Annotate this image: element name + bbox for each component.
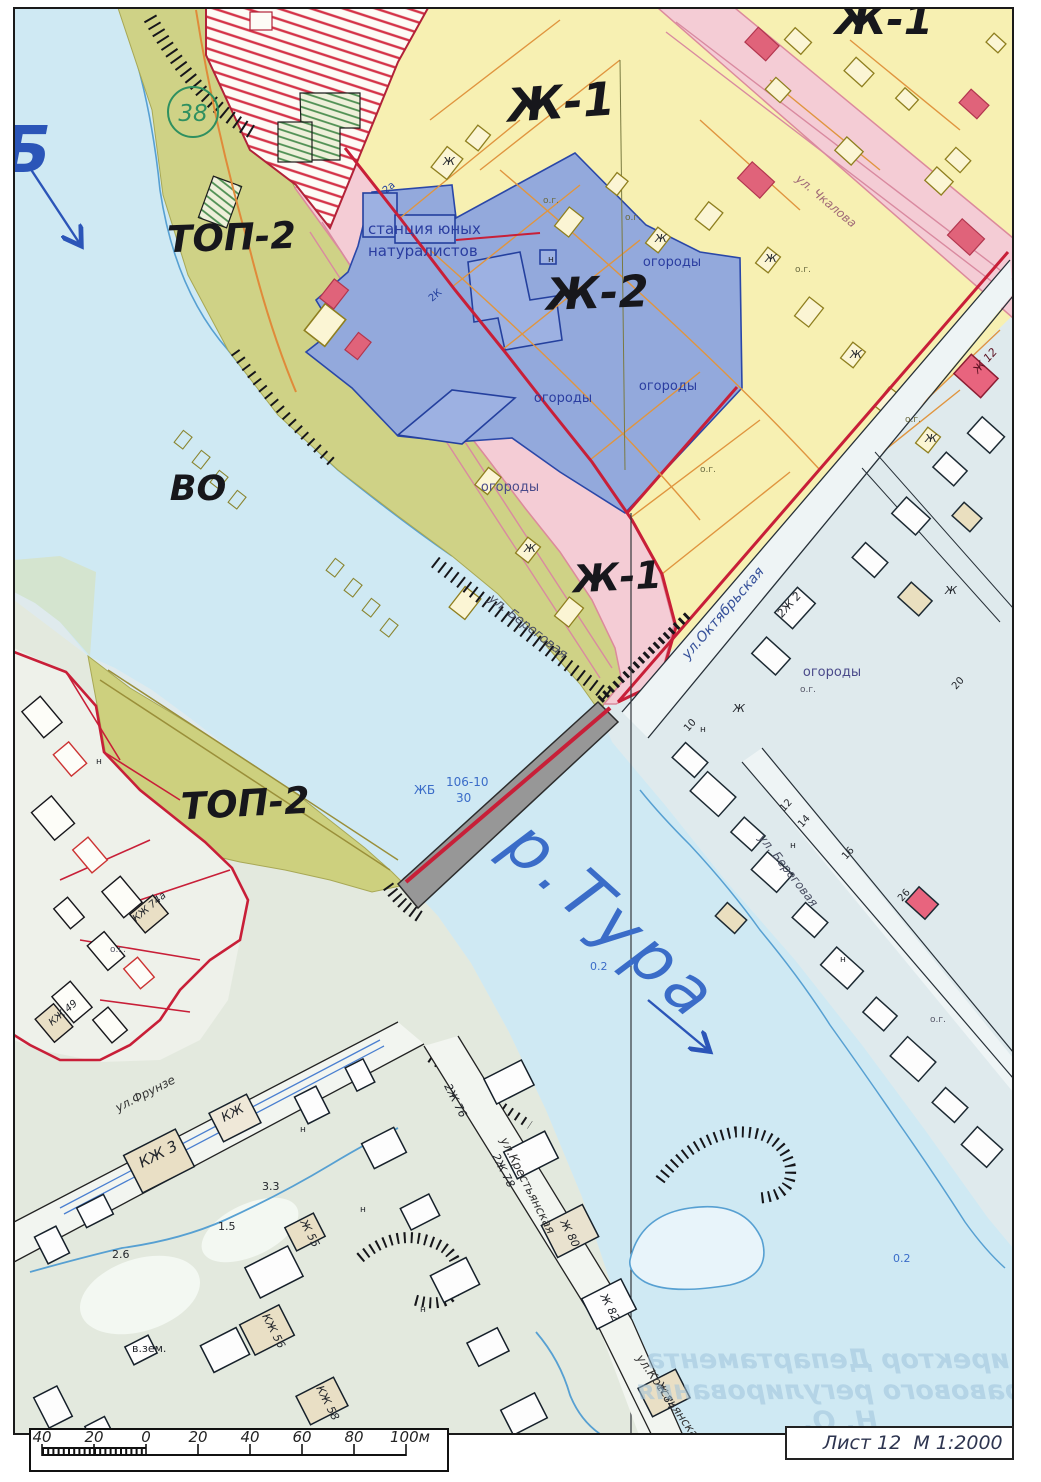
map-canvas: 38 Б Ж-1 Ж-1 Ж-1 Ж-2 ТОП-2 ТОП-2 ВО р.Ту… [0,0,1041,1482]
zh-mark: Ж [523,542,537,555]
garden-label: огороды [481,480,539,495]
depth-mark: 0.2 [893,1252,911,1265]
zone-label-zh1-top: Ж-1 [502,71,616,133]
scale-tick: 60 [292,1428,311,1446]
stamp-line: Директор Департамента [646,1344,1034,1375]
og-mark: о.г. [110,945,126,955]
sheet-box: Лист 12 М 1:2000 [786,1427,1013,1459]
sheet-number: Лист 12 [822,1432,901,1454]
n-mark: н [548,255,554,265]
og-mark: о.г. [543,196,559,206]
og-mark: о.г. [905,415,921,425]
zone-label-vo: ВО [170,469,226,509]
bridge-material: ЖБ [414,783,435,797]
stamp-line: правового регулирования [637,1375,1041,1406]
station-label: станция юных [368,220,481,238]
og-mark: о.г. [625,213,641,223]
zh-mark: Ж [764,252,778,265]
edge-letter: Б [2,114,51,188]
zh-mark: Ж [944,584,958,597]
scale-tick: 40 [32,1428,51,1446]
spot-height: 2.6 [112,1248,130,1261]
og-mark: о.г. [930,1015,946,1025]
zh-mark: Ж [924,432,938,445]
garden-label: огороды [534,391,592,406]
station-label: натуралистов [368,242,478,260]
scale-tick: 0 [141,1428,151,1446]
zone-label-zh1-mid: Ж-1 [569,553,663,602]
garden-label: огороды [643,255,701,270]
zh-mark: Ж [849,348,863,361]
spot-height: 3.3 [262,1180,280,1193]
scale-bar: 40 20 0 20 40 60 80 100м [30,1428,448,1471]
depth-mark: 0.2 [590,960,608,973]
og-mark: о.г. [800,685,816,695]
scanned-zoning-map: { "sheet": { "label": "Лист 12", "scale"… [0,0,1041,1482]
n-mark: н [420,1305,426,1315]
zh-mark: Ж [654,232,668,245]
zh-mark: Ж [732,702,746,715]
bridge-capacity: 30 [456,791,471,805]
scale-tick: 80 [344,1428,363,1446]
circle-38-label: 38 [178,101,207,127]
sheet-scale: М 1:2000 [913,1432,1002,1454]
scale-tick: 20 [188,1428,207,1446]
n-mark: н [360,1205,366,1215]
n-mark: н [840,955,846,965]
n-mark: н [700,725,706,735]
zone-label-zh2: Ж-2 [542,266,649,321]
scale-tick: 100м [390,1428,430,1446]
zone-label-top2-lower: ТОП-2 [180,779,311,829]
zone-label-zh1-topright: Ж-1 [832,0,933,44]
bridge-size: 106-10 [446,775,489,789]
n-mark: н [300,1125,306,1135]
garden-label: огороды [639,379,697,394]
zone-label-top2-upper: ТОП-2 [166,214,296,261]
og-mark: о.г. [795,265,811,275]
spot-height: 1.5 [218,1220,236,1233]
note-vzem: в.зем. [132,1342,166,1355]
n-mark: н [790,841,796,851]
scale-tick: 20 [84,1428,103,1446]
garden-label: огороды [803,665,861,680]
n-mark: н [96,757,102,767]
scale-tick: 40 [240,1428,259,1446]
zh-mark: Ж [442,155,456,168]
og-mark: о.г. [700,465,716,475]
